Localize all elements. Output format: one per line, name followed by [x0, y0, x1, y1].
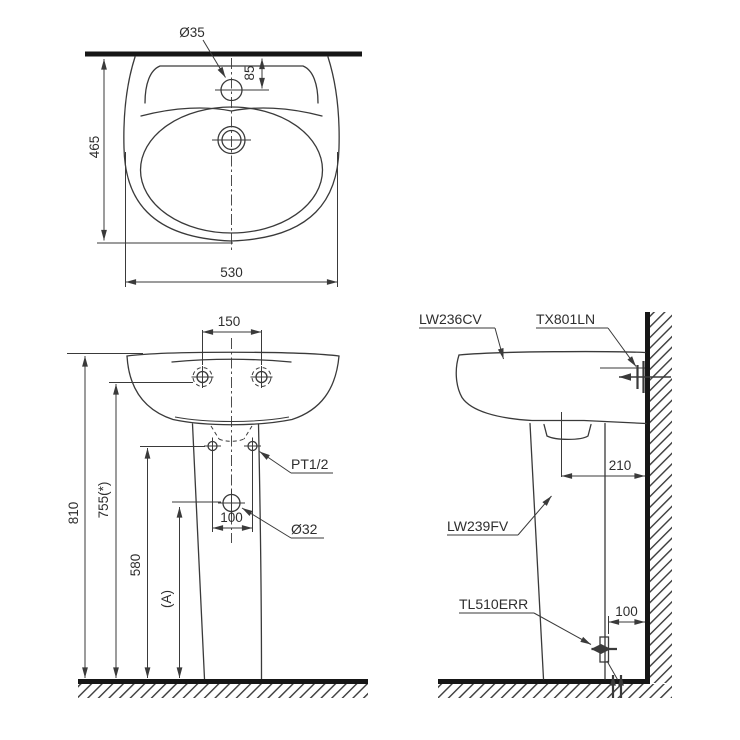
pedestal-left-edge — [193, 424, 205, 679]
hanger-bolt-left — [190, 365, 215, 390]
floor-hatching — [78, 684, 368, 698]
wall-hatching — [650, 312, 672, 683]
dim-drain-height: (A) — [159, 590, 174, 608]
basin-body-profile — [456, 355, 646, 424]
dim-faucet-hole-diameter: Ø35 — [179, 25, 205, 40]
supply-hole-left — [204, 438, 221, 455]
floor-hatching — [438, 684, 672, 698]
bowl-bottom-crease — [175, 417, 289, 422]
dim-rim-height: 755(*) — [96, 482, 111, 519]
pedestal-top-recess — [544, 425, 591, 440]
leader-supply-thread — [260, 452, 292, 474]
dim-supply-spacing: 100 — [220, 510, 243, 525]
dim-outlet-to-wall: 100 — [615, 604, 638, 619]
rim-top-edge — [127, 352, 339, 356]
leader-faucet-diameter — [203, 40, 226, 78]
dim-drain-to-wall: 210 — [609, 458, 632, 473]
label-hanger-bolt-model: TX801LN — [536, 311, 595, 327]
pedestal-right-edge — [259, 424, 262, 679]
dim-faucet-to-wall: 85 — [242, 65, 257, 80]
dim-basin-width: 530 — [220, 265, 243, 280]
label-lavatory-model: LW236CV — [419, 311, 482, 327]
leader-hanger-bolt-model — [608, 328, 636, 367]
dim-basin-depth: 465 — [87, 136, 102, 159]
bolt-tip — [619, 373, 631, 381]
drawing-canvas: Ø35 85 465 530 — [0, 0, 740, 740]
dim-bolt-spacing: 150 — [218, 314, 241, 329]
bowl-outline — [127, 356, 339, 425]
label-drain-diameter: Ø32 — [291, 521, 318, 537]
side-view: 210 LW236CV TX801LN LW239FV TL510ERR 100 — [419, 311, 672, 698]
label-pedestal-model: LW239FV — [447, 518, 509, 534]
front-view: 150 100 810 755(*) 580 (A) PT1/2 Ø32 — [66, 314, 368, 698]
top-view: Ø35 85 465 530 — [85, 25, 362, 287]
leader-lavatory-model — [495, 328, 504, 359]
leader-drain-diameter — [242, 508, 291, 538]
label-supply-thread: PT1/2 — [291, 456, 329, 472]
dim-supply-height: 580 — [128, 554, 143, 577]
hanger-bolt-right — [249, 365, 274, 390]
basin-rim-profile — [459, 352, 645, 355]
leader-drain-set-model — [534, 613, 591, 645]
pedestal-lavatory-dimension-drawing: Ø35 85 465 530 — [0, 0, 740, 740]
dim-overall-height: 810 — [66, 502, 81, 525]
pedestal-front-edge — [530, 424, 544, 680]
label-drain-set-model: TL510ERR — [459, 596, 528, 612]
